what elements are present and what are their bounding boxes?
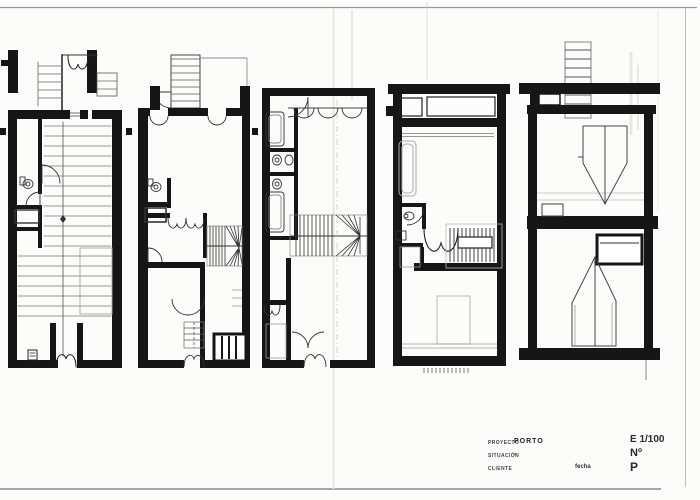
floor-plan-4-second [386,84,510,373]
floor-plan-2-ground [138,55,250,368]
sheet-letter: P [630,460,638,474]
plan4-terrace [400,97,495,116]
parking-bay-outline [80,248,112,314]
entry-steps [38,62,62,106]
client-label: CLIENTE [488,466,512,472]
floor-grate [214,334,246,361]
roof-ridge-lines [537,193,644,200]
skylight [597,235,642,264]
plan4-room-outline [437,296,470,344]
wc-fixtures [15,177,40,223]
plan4-floor-lines [402,344,497,348]
floor-plans-drawing [0,0,700,500]
floor-plan-5-roof [519,42,660,380]
terrace-edge-lines [402,134,494,137]
sheet-number-label: Nº [630,447,642,459]
plan4-walls [386,84,510,366]
floor-plan-3-first [262,88,375,368]
drawing-sheet: PROYECTO PORTO SITUACIÓN - CLIENTE fecha… [0,0,700,500]
plan1-walls [8,110,122,368]
scale-value: E 1/100 [630,434,664,445]
ramp-door-arc [42,165,60,183]
floor-plan-1-basement [1,50,122,368]
shelving-lines [232,290,242,306]
entrance-arch-door [68,56,88,69]
garage-door-arch [56,355,76,367]
wc-door-arc [26,192,40,206]
date-label: fecha [575,464,591,470]
plan2-winder-stair [207,226,242,266]
plan2-door-arcs [148,116,226,367]
situation-value: - [514,451,517,458]
plan3-winder-stair [290,215,367,256]
vestibule [1,50,117,110]
plan4-double-door [424,228,458,251]
plan4-bathtub [399,141,416,196]
roof-hatch-box [539,94,560,105]
plan4-straight-stair [446,224,502,268]
plan2-top-stair [155,55,247,108]
plan3-entry-arch [304,355,326,367]
roof-gable-upper [578,126,627,204]
roof-gable-lower [572,257,616,346]
plan4-tick-row [424,368,468,373]
project-value: PORTO [514,438,544,445]
stair-landing [458,237,492,248]
top-door-leaf [70,113,80,116]
roof-box-outline [542,204,563,216]
